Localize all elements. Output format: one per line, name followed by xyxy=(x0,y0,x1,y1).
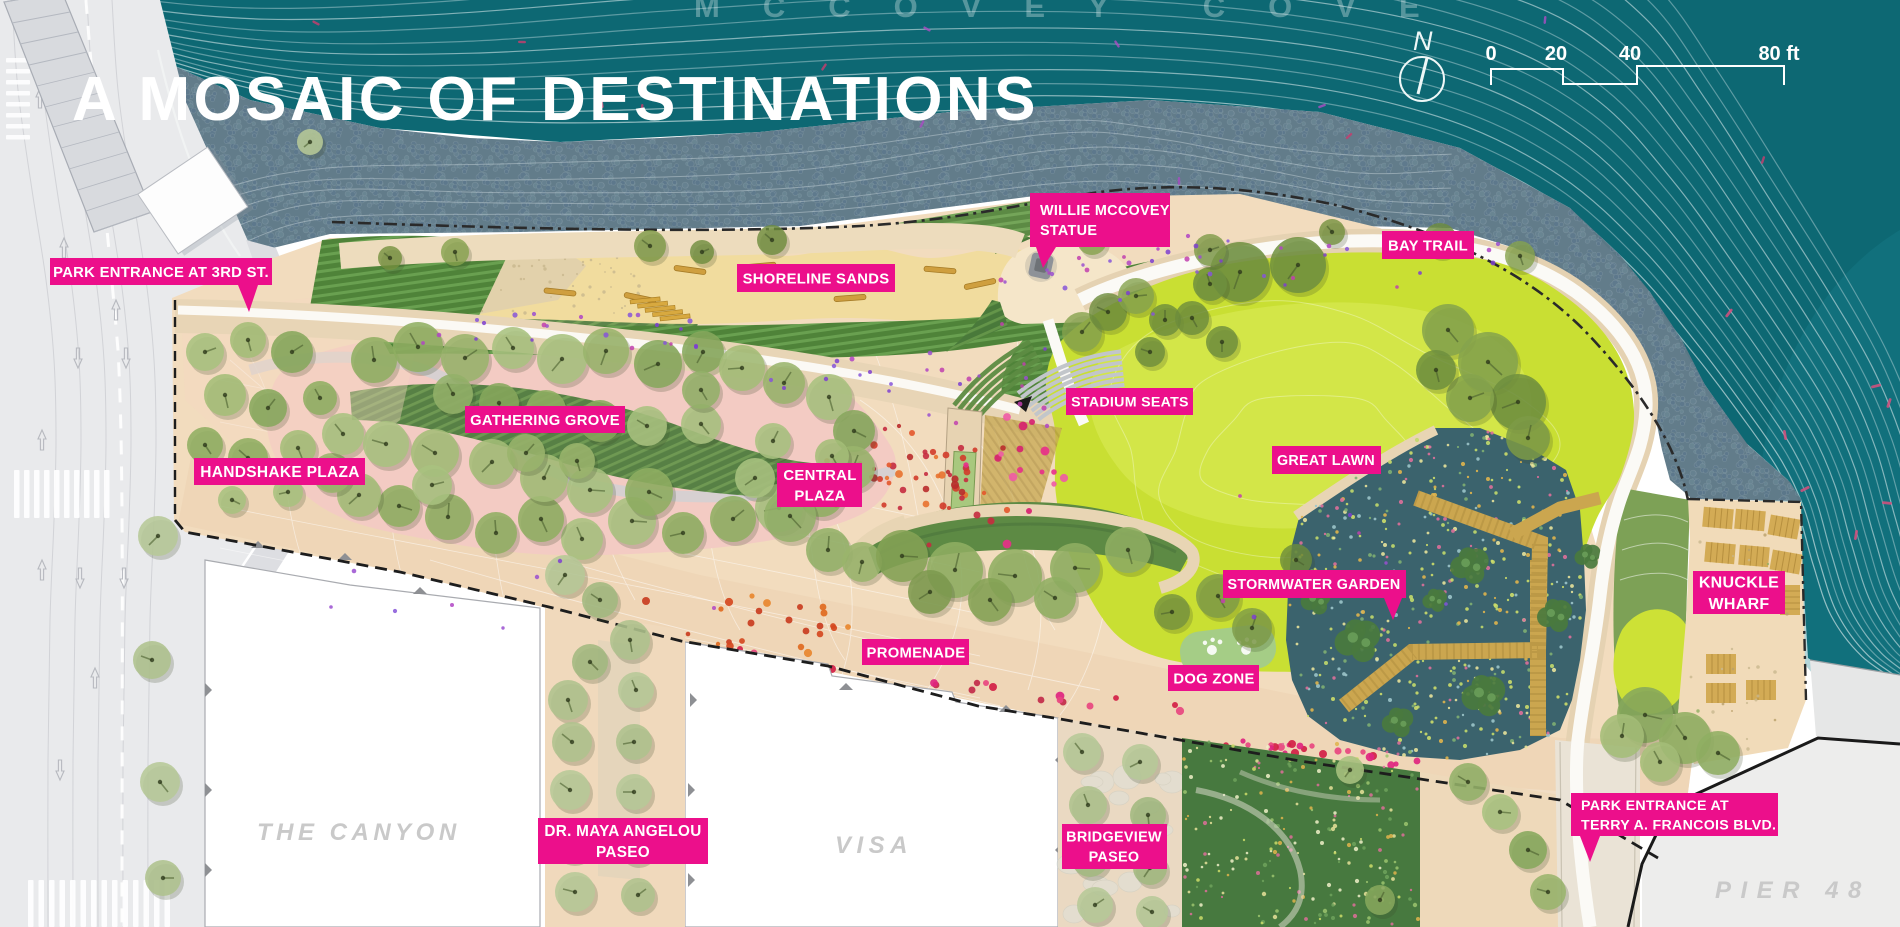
svg-text:THE CANYON: THE CANYON xyxy=(257,819,461,846)
svg-text:MCCOVEY COVE: MCCOVEY COVE xyxy=(694,0,1463,24)
svg-text:STATUE: STATUE xyxy=(1040,223,1097,239)
svg-text:KNUCKLE: KNUCKLE xyxy=(1699,575,1779,592)
svg-text:PASEO: PASEO xyxy=(596,844,650,861)
svg-text:WHARF: WHARF xyxy=(1708,596,1769,613)
svg-text:PASEO: PASEO xyxy=(1089,850,1140,866)
svg-text:STADIUM SEATS: STADIUM SEATS xyxy=(1071,395,1189,411)
svg-text:PROMENADE: PROMENADE xyxy=(867,645,966,661)
svg-text:20: 20 xyxy=(1545,43,1567,65)
svg-text:HANDSHAKE PLAZA: HANDSHAKE PLAZA xyxy=(200,464,360,481)
svg-text:80 ft: 80 ft xyxy=(1758,43,1799,65)
svg-text:0: 0 xyxy=(1485,43,1496,65)
svg-text:BAY TRAIL: BAY TRAIL xyxy=(1388,238,1468,254)
svg-text:GREAT LAWN: GREAT LAWN xyxy=(1277,453,1375,469)
svg-text:DR. MAYA ANGELOU: DR. MAYA ANGELOU xyxy=(544,823,701,840)
svg-text:PLAZA: PLAZA xyxy=(794,489,845,505)
svg-text:A MOSAIC OF DESTINATIONS: A MOSAIC OF DESTINATIONS xyxy=(72,65,1039,134)
svg-text:PIER 48: PIER 48 xyxy=(1715,877,1871,904)
svg-text:TERRY A. FRANCOIS BLVD.: TERRY A. FRANCOIS BLVD. xyxy=(1581,818,1776,834)
svg-text:40: 40 xyxy=(1619,43,1641,65)
svg-text:PARK ENTRANCE AT 3RD ST.: PARK ENTRANCE AT 3RD ST. xyxy=(53,265,269,281)
svg-text:PARK ENTRANCE AT: PARK ENTRANCE AT xyxy=(1581,798,1729,814)
svg-text:WILLIE MCCOVEY: WILLIE MCCOVEY xyxy=(1040,203,1170,219)
svg-text:BRIDGEVIEW: BRIDGEVIEW xyxy=(1066,830,1162,846)
svg-text:DOG ZONE: DOG ZONE xyxy=(1173,671,1254,687)
svg-text:CENTRAL: CENTRAL xyxy=(783,468,856,484)
svg-text:STORMWATER GARDEN: STORMWATER GARDEN xyxy=(1228,577,1401,593)
svg-text:GATHERING GROVE: GATHERING GROVE xyxy=(470,413,620,429)
svg-text:N: N xyxy=(1413,26,1433,56)
svg-text:SHORELINE SANDS: SHORELINE SANDS xyxy=(743,271,890,287)
svg-text:VISA: VISA xyxy=(835,832,913,859)
